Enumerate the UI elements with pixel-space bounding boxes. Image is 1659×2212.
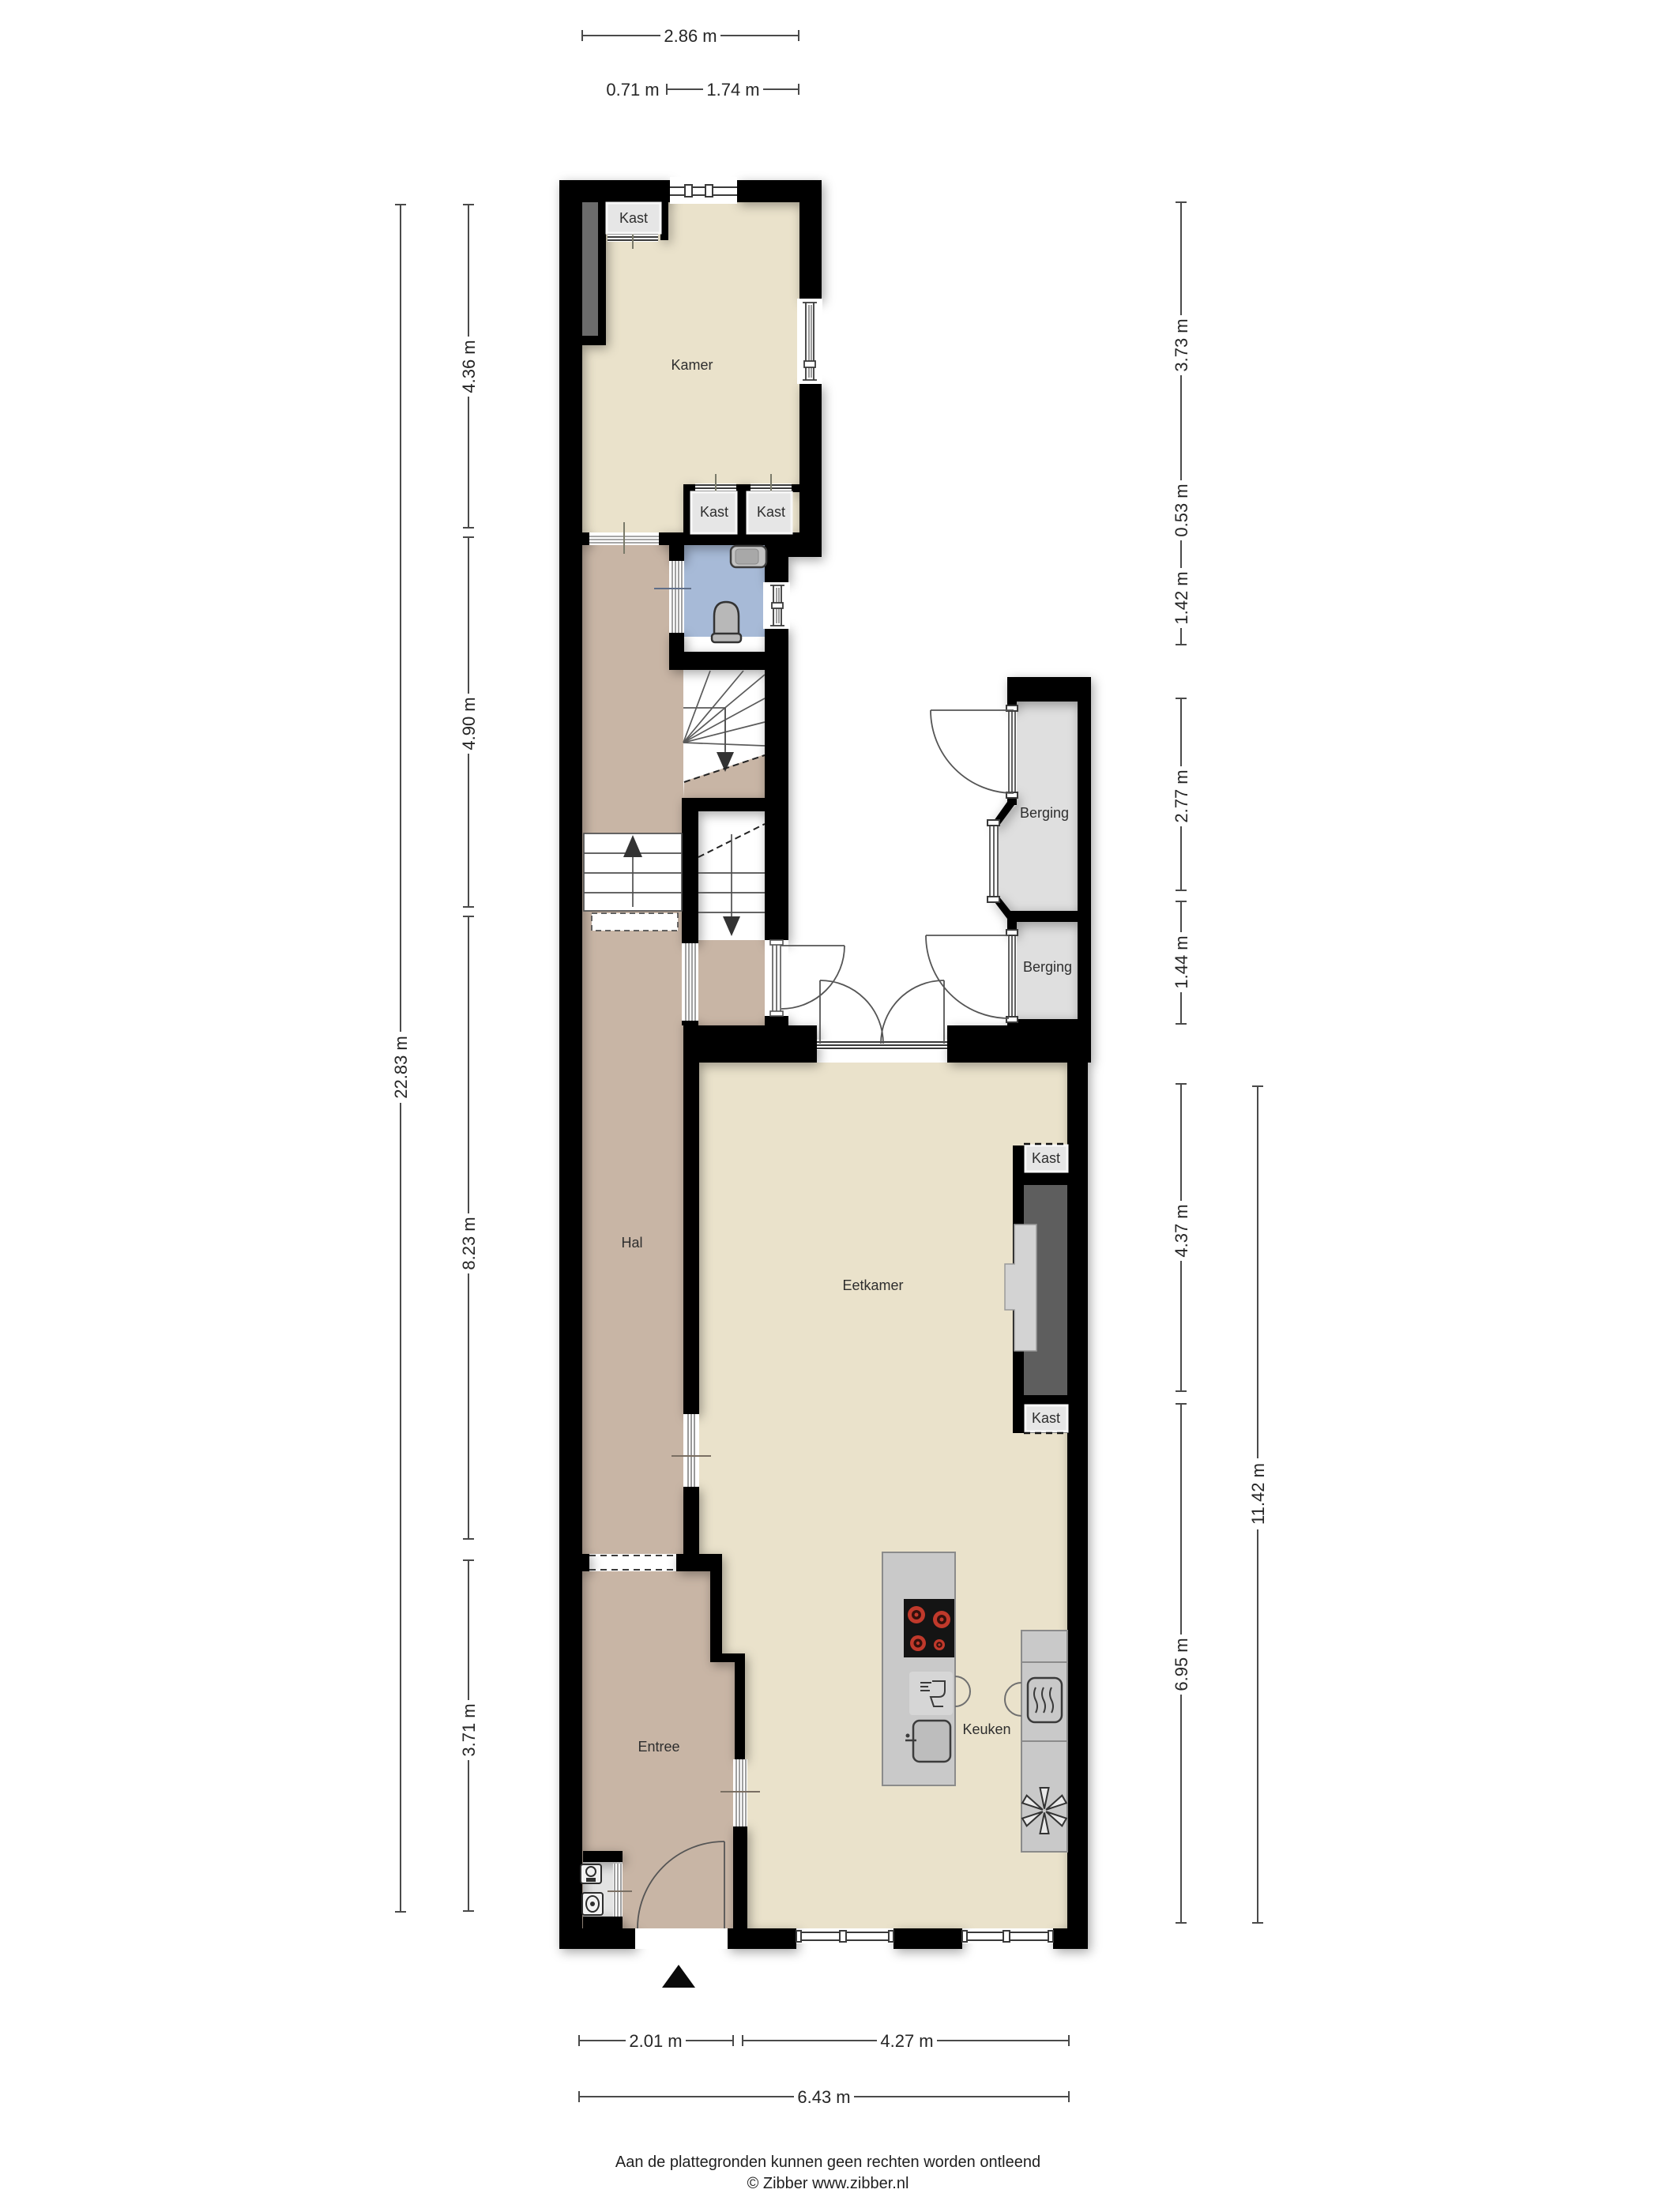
svg-text:11.42 m: 11.42 m — [1248, 1463, 1268, 1525]
svg-text:4.90 m: 4.90 m — [459, 697, 479, 750]
svg-text:6.43 m: 6.43 m — [797, 2087, 850, 2107]
svg-text:Eetkamer: Eetkamer — [842, 1277, 903, 1293]
svg-text:6.95 m: 6.95 m — [1172, 1638, 1191, 1691]
svg-text:3.73 m: 3.73 m — [1172, 318, 1191, 371]
svg-text:Kast: Kast — [619, 210, 648, 226]
svg-text:Kast: Kast — [700, 504, 728, 520]
svg-text:Berging: Berging — [1023, 959, 1072, 975]
svg-text:0.71 m: 0.71 m — [606, 80, 659, 100]
svg-text:4.27 m: 4.27 m — [880, 2031, 933, 2051]
svg-text:0.53 m: 0.53 m — [1172, 483, 1191, 536]
svg-text:2.77 m: 2.77 m — [1172, 769, 1191, 822]
svg-text:8.23 m: 8.23 m — [459, 1217, 479, 1270]
svg-text:Keuken: Keuken — [962, 1721, 1010, 1737]
svg-text:3.71 m: 3.71 m — [459, 1703, 479, 1756]
svg-text:2.86 m: 2.86 m — [664, 26, 717, 46]
svg-text:Kast: Kast — [1032, 1150, 1060, 1166]
svg-text:Entree: Entree — [638, 1739, 679, 1755]
svg-text:4.37 m: 4.37 m — [1172, 1204, 1191, 1257]
svg-text:2.01 m: 2.01 m — [629, 2031, 682, 2051]
svg-text:4.36 m: 4.36 m — [459, 340, 479, 393]
svg-text:22.83 m: 22.83 m — [391, 1036, 411, 1099]
svg-text:Kast: Kast — [757, 504, 785, 520]
svg-text:Berging: Berging — [1020, 805, 1069, 821]
svg-text:© Zibber www.zibber.nl: © Zibber www.zibber.nl — [747, 2175, 909, 2192]
svg-text:1.42 m: 1.42 m — [1172, 571, 1191, 624]
svg-text:1.74 m: 1.74 m — [706, 80, 759, 100]
svg-text:1.44 m: 1.44 m — [1172, 935, 1191, 988]
svg-text:Kast: Kast — [1032, 1410, 1060, 1426]
svg-text:Aan de plattegronden kunnen ge: Aan de plattegronden kunnen geen rechten… — [615, 2154, 1040, 2171]
svg-text:Kamer: Kamer — [671, 357, 713, 373]
svg-text:Hal: Hal — [621, 1235, 642, 1251]
